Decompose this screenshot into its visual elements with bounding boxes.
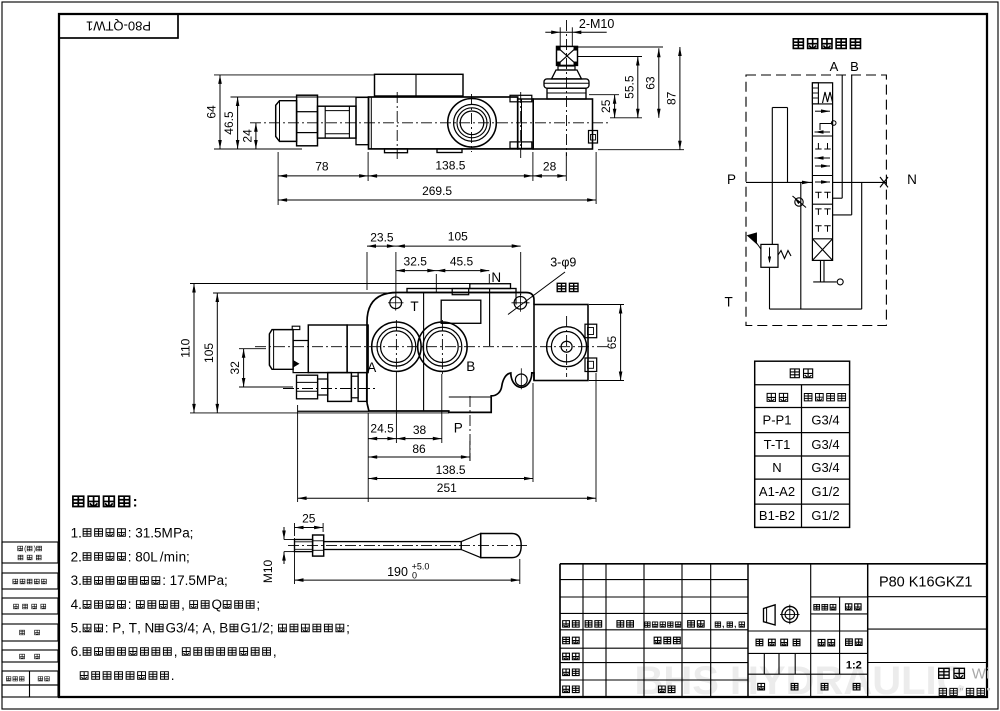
svg-text:P80 K16GKZ1: P80 K16GKZ1: [879, 575, 973, 591]
svg-text:A: A: [830, 59, 839, 74]
svg-text:G: G: [240, 621, 251, 636]
svg-text::: :: [133, 494, 138, 511]
svg-text:1: 1: [170, 573, 178, 588]
svg-text:32.5: 32.5: [404, 254, 428, 268]
svg-text:,: ,: [137, 621, 141, 636]
svg-text::: :: [105, 621, 109, 636]
svg-text:8: 8: [135, 549, 143, 564]
svg-text:1: 1: [251, 621, 259, 636]
svg-text:25: 25: [302, 512, 316, 526]
svg-text:3-φ9: 3-φ9: [550, 255, 576, 269]
svg-text:,: ,: [181, 597, 185, 612]
svg-text:): ): [34, 546, 36, 553]
svg-text:T: T: [724, 295, 732, 310]
svg-text:,: ,: [734, 620, 736, 629]
svg-text:n: n: [179, 549, 187, 564]
svg-text:N: N: [772, 460, 781, 475]
svg-text:1:2: 1:2: [846, 660, 862, 672]
svg-text:G1/2: G1/2: [811, 508, 839, 523]
svg-text:1: 1: [71, 525, 79, 540]
svg-text:38: 38: [413, 423, 427, 437]
svg-text:65: 65: [605, 336, 619, 350]
svg-text:T-T1: T-T1: [764, 437, 791, 452]
svg-text:32: 32: [228, 361, 242, 375]
svg-text:;: ;: [195, 621, 199, 636]
svg-text:B: B: [850, 59, 859, 74]
svg-text:25: 25: [599, 99, 613, 113]
svg-text:110: 110: [179, 338, 193, 357]
svg-text:138.5: 138.5: [436, 463, 466, 477]
svg-text:24: 24: [240, 129, 254, 143]
svg-text:;: ;: [190, 525, 194, 540]
svg-text:2-M10: 2-M10: [579, 17, 614, 31]
svg-text:46.5: 46.5: [222, 111, 236, 135]
svg-text::: :: [128, 525, 132, 540]
svg-text:269.5: 269.5: [422, 184, 452, 198]
svg-text:i: i: [986, 666, 989, 683]
svg-text:105: 105: [202, 343, 216, 363]
svg-text:P: P: [173, 525, 182, 540]
svg-text:7: 7: [177, 573, 185, 588]
svg-text:.: .: [171, 668, 175, 683]
svg-text:W: W: [972, 666, 987, 683]
svg-text:1: 1: [143, 525, 151, 540]
svg-text:,: ,: [174, 644, 178, 659]
svg-text:.: .: [78, 644, 82, 659]
svg-text:N: N: [491, 270, 501, 285]
svg-text:3: 3: [135, 525, 143, 540]
svg-text:A1-A2: A1-A2: [759, 484, 795, 499]
svg-text:P: P: [454, 421, 463, 436]
svg-text:.: .: [78, 573, 82, 588]
svg-text:P: P: [112, 621, 121, 636]
svg-text:L: L: [150, 549, 158, 564]
svg-text:;: ;: [346, 621, 350, 636]
svg-text:55.5: 55.5: [622, 75, 636, 99]
svg-text:,: ,: [212, 621, 216, 636]
svg-text:251: 251: [437, 481, 457, 495]
svg-text:;: ;: [224, 573, 228, 588]
svg-text:B1-B2: B1-B2: [759, 508, 795, 523]
svg-text:138.5: 138.5: [435, 158, 465, 172]
svg-text:;: ;: [270, 621, 274, 636]
svg-text:5: 5: [154, 525, 162, 540]
svg-text:": ": [987, 687, 991, 699]
svg-text:.: .: [78, 597, 82, 612]
svg-text::: :: [128, 549, 132, 564]
svg-text:;: ;: [186, 549, 190, 564]
svg-text:190: 190: [387, 565, 408, 579]
svg-text:G1/2: G1/2: [811, 484, 839, 499]
svg-text:P: P: [208, 573, 217, 588]
svg-text:N: N: [145, 621, 155, 636]
svg-text:.: .: [78, 621, 82, 636]
svg-text:Q: Q: [212, 597, 223, 612]
svg-text:,: ,: [121, 621, 125, 636]
svg-text:87: 87: [664, 91, 678, 105]
svg-text:G3/4: G3/4: [811, 460, 839, 475]
svg-text:T: T: [129, 621, 137, 636]
svg-text:": ": [959, 687, 963, 699]
svg-text:M: M: [196, 573, 207, 588]
svg-text:2: 2: [262, 621, 270, 636]
svg-text:45.5: 45.5: [450, 254, 474, 268]
svg-text:.: .: [78, 525, 82, 540]
svg-text:m: m: [164, 549, 175, 564]
svg-text:;: ;: [256, 597, 260, 612]
svg-text:5: 5: [71, 621, 79, 636]
svg-text:0: 0: [412, 571, 417, 581]
svg-text:24.5: 24.5: [370, 422, 394, 436]
svg-text:3: 3: [71, 573, 79, 588]
svg-text:0: 0: [143, 549, 151, 564]
svg-text:,: ,: [273, 644, 277, 659]
svg-text:23.5: 23.5: [370, 230, 394, 244]
svg-text:28: 28: [543, 160, 557, 174]
svg-text:3: 3: [176, 621, 184, 636]
svg-text:.: .: [78, 549, 82, 564]
svg-text:5: 5: [188, 573, 196, 588]
svg-text:P: P: [727, 172, 736, 187]
svg-text:M10: M10: [261, 560, 275, 584]
svg-text:G: G: [166, 621, 177, 636]
svg-text:63: 63: [643, 76, 657, 90]
svg-text:2: 2: [71, 549, 79, 564]
svg-text:B: B: [466, 359, 475, 374]
svg-text::: :: [128, 597, 132, 612]
svg-text:G3/4: G3/4: [811, 413, 839, 428]
svg-text:86: 86: [412, 442, 426, 456]
svg-text:,: ,: [722, 620, 724, 629]
svg-text:78: 78: [315, 160, 329, 174]
svg-text:G3/4: G3/4: [811, 437, 839, 452]
svg-text:B: B: [219, 621, 228, 636]
svg-text:64: 64: [205, 105, 219, 119]
svg-text:6: 6: [71, 644, 79, 659]
svg-text:M: M: [162, 525, 173, 540]
svg-text:105: 105: [448, 230, 468, 244]
svg-text:T: T: [410, 299, 418, 314]
svg-text:P80-QTW1: P80-QTW1: [86, 19, 151, 34]
svg-text::: :: [162, 573, 166, 588]
svg-text:A: A: [203, 621, 212, 636]
svg-text:N: N: [907, 172, 917, 187]
svg-text:P-P1: P-P1: [763, 413, 792, 428]
svg-text:BHS HYDRAULIC: BHS HYDRAULIC: [634, 659, 965, 703]
